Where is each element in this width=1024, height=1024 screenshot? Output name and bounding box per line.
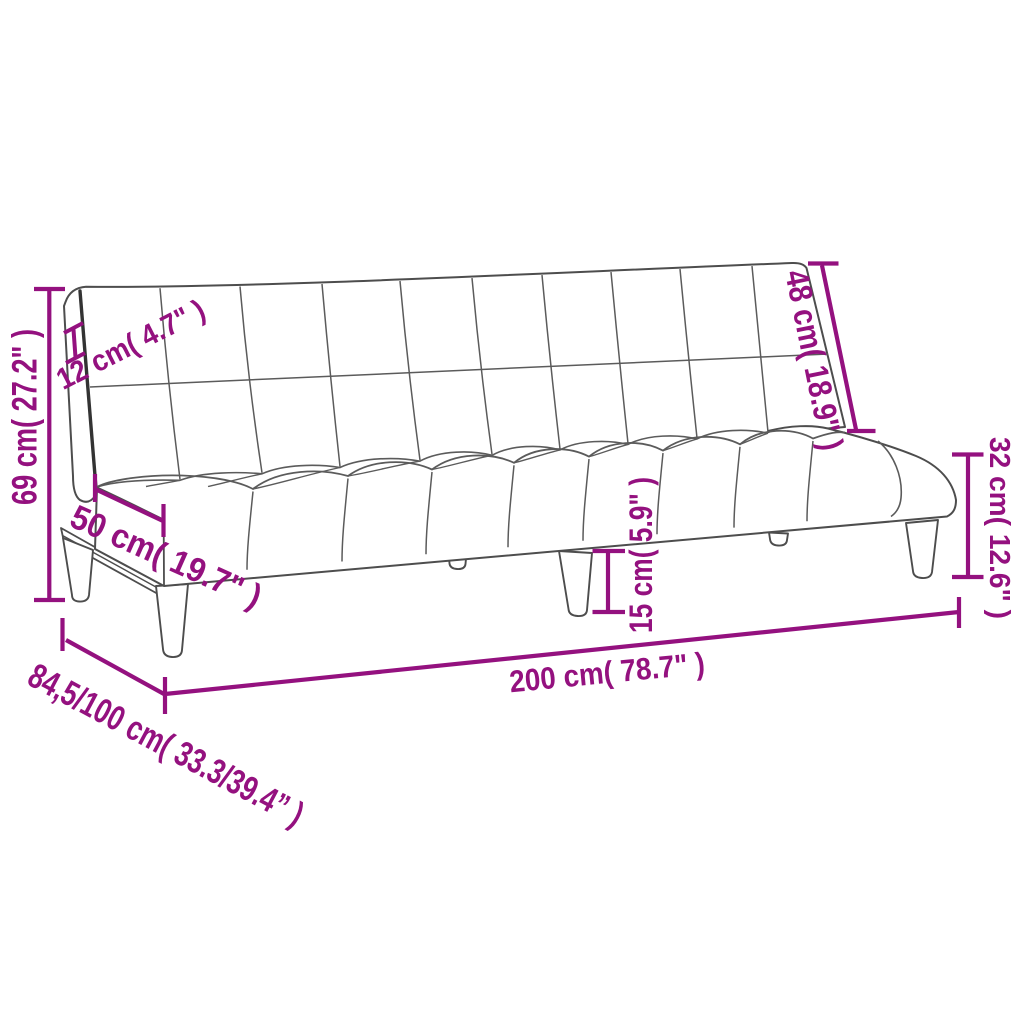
svg-text:32 cm( 12.6" ): 32 cm( 12.6" ) <box>983 437 1015 619</box>
svg-text:69 cm( 27.2" ): 69 cm( 27.2" ) <box>6 329 45 505</box>
svg-text:15 cm( 5.9" ): 15 cm( 5.9" ) <box>623 477 659 633</box>
